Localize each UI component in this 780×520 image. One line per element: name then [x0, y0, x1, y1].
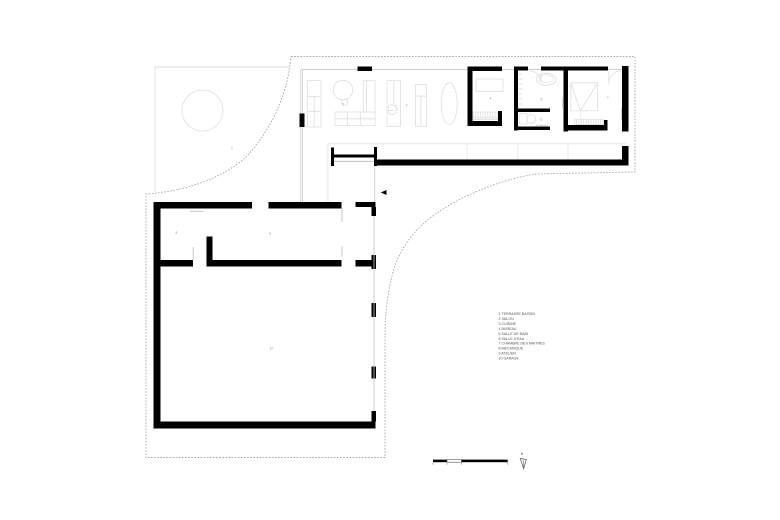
svg-text:1: 1: [231, 147, 233, 151]
svg-text:4: 4: [490, 97, 492, 101]
svg-text:9: 9: [269, 232, 271, 236]
svg-text:9 ATELIER: 9 ATELIER: [499, 352, 517, 356]
svg-text:3: 3: [406, 104, 408, 108]
svg-text:2 SALON: 2 SALON: [499, 317, 515, 321]
svg-text:8 MECANIQUE: 8 MECANIQUE: [499, 347, 524, 351]
svg-text:4 BUREAU: 4 BUREAU: [499, 327, 517, 331]
svg-text:5 SALLE DE BAIN: 5 SALLE DE BAIN: [499, 332, 529, 336]
svg-text:3 CUISINE: 3 CUISINE: [499, 322, 517, 326]
svg-text:2: 2: [342, 103, 344, 107]
svg-text:1 TERRASSE BASSIN: 1 TERRASSE BASSIN: [499, 312, 536, 316]
svg-text:7: 7: [607, 96, 609, 100]
svg-text:7 CHAMBRE DES MAITRES: 7 CHAMBRE DES MAITRES: [499, 342, 546, 346]
svg-text:6 SALLE D'EAU: 6 SALLE D'EAU: [499, 337, 525, 341]
svg-text:5: 5: [541, 98, 543, 102]
svg-text:6: 6: [541, 117, 543, 121]
svg-text:8: 8: [176, 231, 178, 235]
svg-text:10 GARAGE: 10 GARAGE: [499, 357, 520, 361]
svg-text:10: 10: [270, 347, 274, 351]
